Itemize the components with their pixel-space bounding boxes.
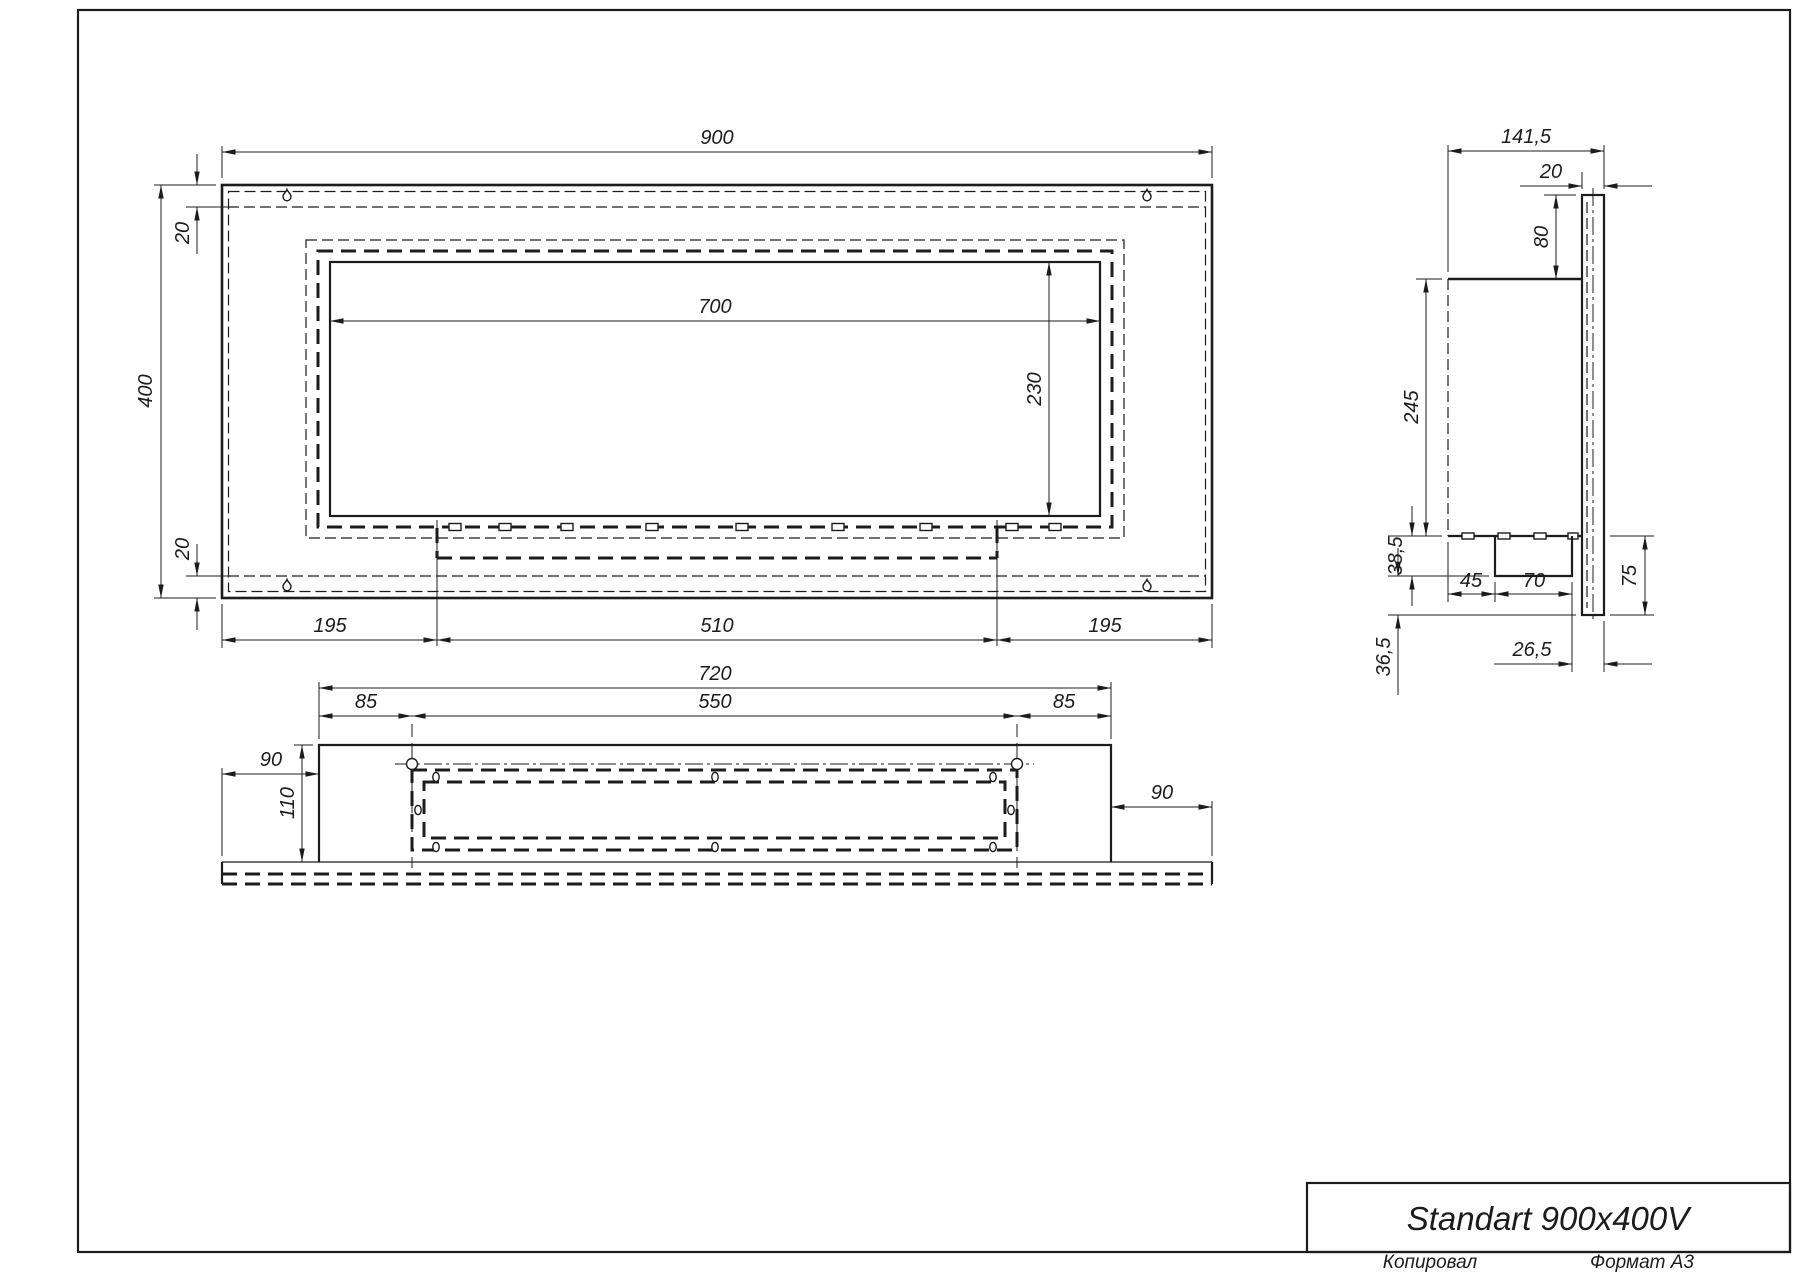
front-view: 900 400 20 20 700 230 195 510 195	[135, 127, 1212, 648]
dim-bottom-opening-width: 550	[698, 691, 731, 713]
dim-burner-height: 38,5	[1385, 536, 1407, 576]
dim-front-width: 900	[700, 127, 733, 149]
dim-front-offset: 45	[1460, 570, 1483, 592]
dim-center-span: 510	[700, 615, 733, 637]
dim-left-offset: 195	[313, 615, 347, 637]
dim-left-overhang: 90	[260, 749, 282, 771]
dim-right-overhang: 90	[1151, 782, 1173, 804]
dim-top-height: 80	[1531, 226, 1553, 248]
dim-side-depth: 141,5	[1501, 126, 1552, 148]
drawing-sheet: 900 400 20 20 700 230 195 510 195	[0, 0, 1800, 1273]
side-view: 141,5 20 80 245 38,5 36,5 75	[1373, 126, 1654, 695]
keyhole-hanger-icon	[1143, 580, 1151, 591]
dim-bottom-left-inset: 85	[355, 691, 378, 713]
dim-opening-width: 700	[698, 296, 731, 318]
dim-bottom-depth: 110	[277, 787, 299, 819]
dim-burner-depth: 70	[1523, 570, 1545, 592]
drawing-title: Standart 900x400V	[1407, 1200, 1693, 1237]
technical-drawing: 900 400 20 20 700 230 195 510 195	[0, 0, 1800, 1273]
dim-panel-thickness: 20	[1539, 161, 1562, 183]
dim-body-height: 245	[1401, 389, 1423, 424]
dim-front-height: 400	[135, 374, 157, 407]
dim-front-top-inset: 20	[172, 222, 194, 245]
dim-lip-height: 75	[1619, 564, 1641, 587]
dim-bottom-body-width: 720	[698, 663, 731, 685]
dim-back-offset: 26,5	[1512, 639, 1553, 661]
copied-label: Копировал	[1383, 1252, 1478, 1273]
title-block: Standart 900x400V Копировал Формат А3	[1307, 1183, 1790, 1273]
keyhole-hanger-icon	[283, 580, 291, 591]
dim-front-bottom-inset: 20	[172, 538, 194, 561]
bottom-view: 720 85 550 85 90 90 110	[222, 663, 1212, 884]
dim-opening-height: 230	[1024, 372, 1046, 406]
format-label: Формат А3	[1590, 1252, 1694, 1273]
dim-right-offset: 195	[1088, 615, 1122, 637]
dim-bottom-height: 36,5	[1373, 637, 1395, 677]
dim-bottom-right-inset: 85	[1053, 691, 1076, 713]
